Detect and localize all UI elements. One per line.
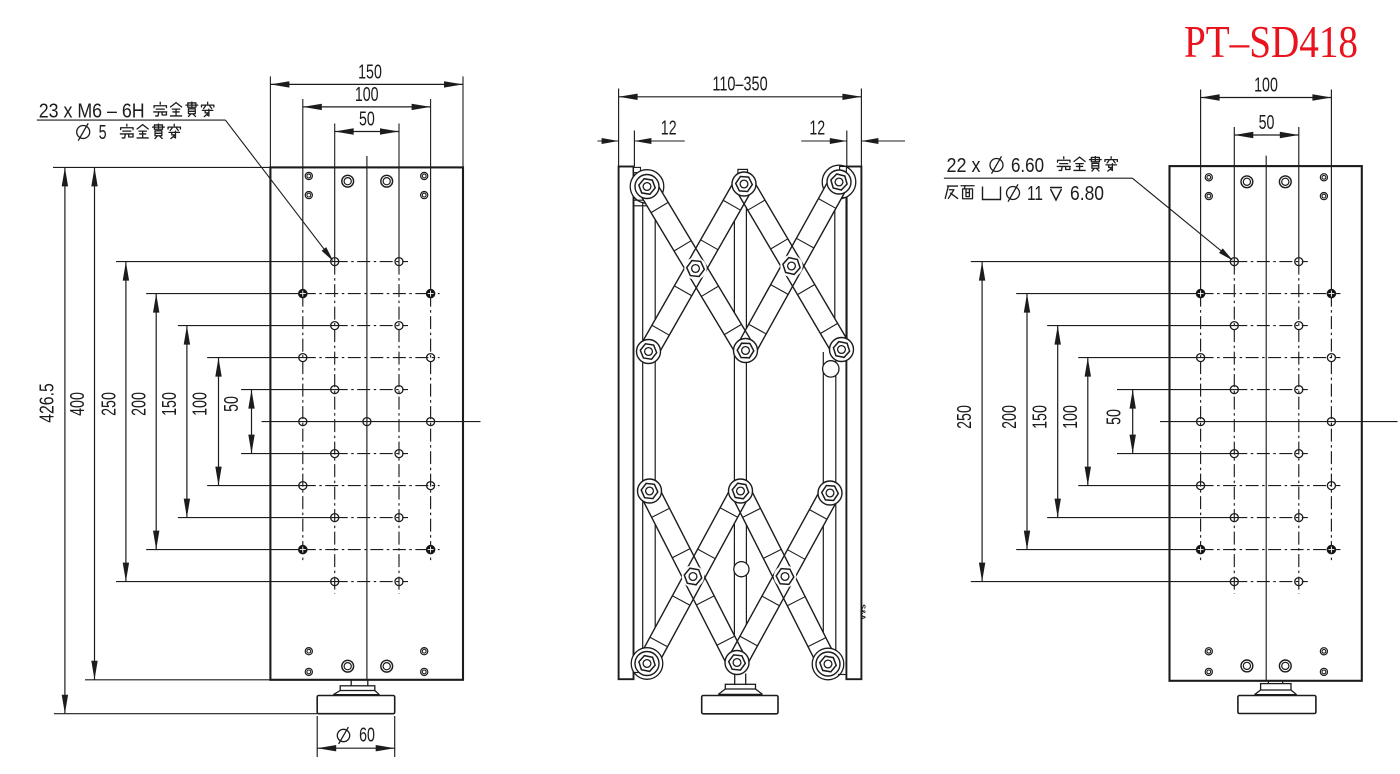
svg-text:60: 60 <box>359 725 375 747</box>
svg-text:23 x M6 – 6H: 23 x M6 – 6H <box>39 101 145 123</box>
svg-text:400: 400 <box>67 392 89 416</box>
svg-text:50: 50 <box>221 396 243 412</box>
svg-text:6.60: 6.60 <box>1011 155 1044 177</box>
svg-text:200: 200 <box>129 392 151 416</box>
svg-text:PT–SD418: PT–SD418 <box>1184 16 1358 67</box>
svg-text:12: 12 <box>661 118 677 140</box>
svg-text:250: 250 <box>99 392 121 416</box>
svg-text:50: 50 <box>359 109 375 131</box>
svg-text:150: 150 <box>159 392 181 416</box>
svg-text:100: 100 <box>190 392 212 416</box>
svg-text:150: 150 <box>358 62 382 84</box>
svg-text:5: 5 <box>99 122 107 144</box>
svg-text:50: 50 <box>1259 112 1275 134</box>
svg-text:150: 150 <box>1030 405 1052 429</box>
svg-text:11: 11 <box>1027 183 1043 205</box>
svg-text:250: 250 <box>954 405 976 429</box>
svg-text:110–350: 110–350 <box>712 74 767 96</box>
svg-text:100: 100 <box>1254 75 1278 97</box>
svg-text:426.5: 426.5 <box>37 383 59 423</box>
svg-text:12: 12 <box>809 118 825 140</box>
svg-text:200: 200 <box>999 405 1021 429</box>
svg-text:22 x: 22 x <box>947 155 981 177</box>
svg-text:100: 100 <box>1060 405 1082 429</box>
svg-text:S&A: S&A <box>859 604 868 620</box>
svg-text:6.80: 6.80 <box>1070 183 1104 205</box>
svg-text:50: 50 <box>1104 409 1126 425</box>
svg-text:100: 100 <box>355 84 379 106</box>
